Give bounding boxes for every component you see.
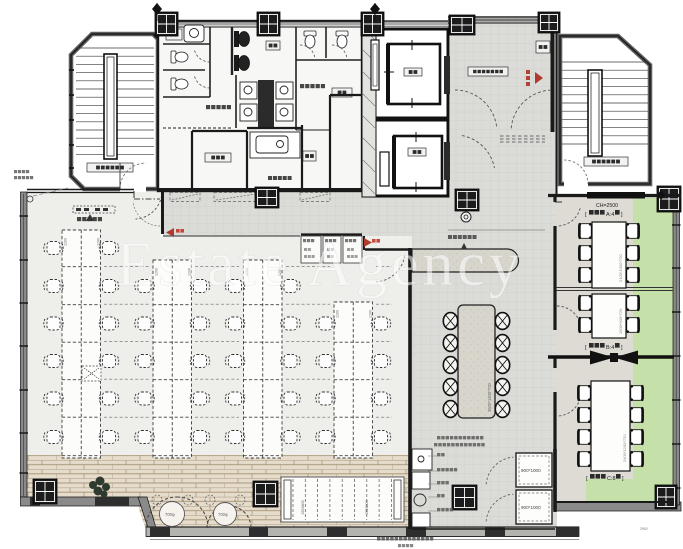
svg-text:900*1000: 900*1000 [521,468,541,473]
svg-text:900*1000: 900*1000 [521,505,541,510]
svg-text:CH=2500: CH=2500 [596,203,618,209]
svg-text:2100*1050*720: 2100*1050*720 [618,254,623,282]
svg-text:3500*1300*720: 3500*1300*720 [487,382,492,412]
svg-text:1260: 1260 [336,310,340,318]
svg-text:1260: 1260 [64,238,68,246]
svg-text:Estate Agency: Estate Agency [116,229,524,299]
svg-text:1200: 1200 [369,310,373,318]
svg-text:1553800: 1553800 [365,500,369,515]
svg-text:2400*1200*720: 2400*1200*720 [622,434,627,462]
svg-text:B:4: B:4 [606,345,614,351]
svg-text:1553800: 1553800 [301,500,305,515]
svg-text:C:8: C:8 [607,476,616,482]
svg-text:1500*900*720: 1500*900*720 [618,308,623,334]
svg-text:2900: 2900 [640,527,648,531]
svg-text:A:4: A:4 [606,212,614,218]
svg-text:700φ: 700φ [165,512,175,517]
svg-text:700φ: 700φ [218,512,228,517]
